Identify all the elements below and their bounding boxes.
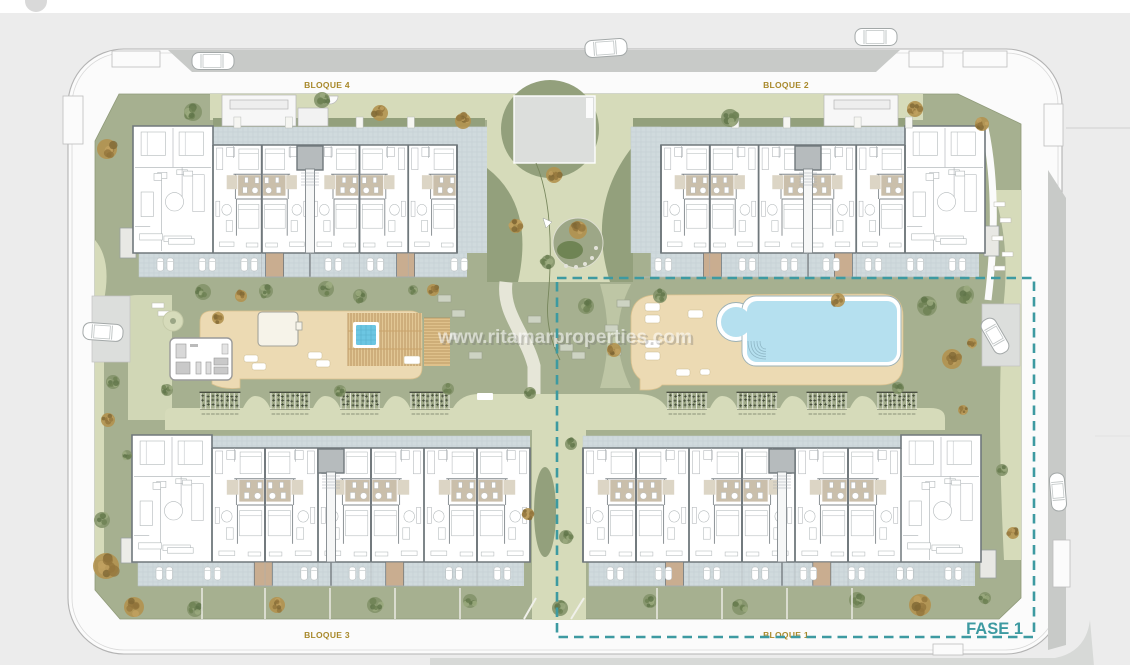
svg-text:BLOQUE 2: BLOQUE 2: [763, 80, 809, 90]
svg-text:BLOQUE 4: BLOQUE 4: [304, 80, 350, 90]
svg-text:BLOQUE 3: BLOQUE 3: [304, 630, 350, 640]
svg-text:FASE 1: FASE 1: [966, 620, 1023, 638]
svg-text:BLOQUE 1: BLOQUE 1: [763, 630, 809, 640]
svg-text:www.ritamarproperties.com: www.ritamarproperties.com: [437, 327, 692, 348]
